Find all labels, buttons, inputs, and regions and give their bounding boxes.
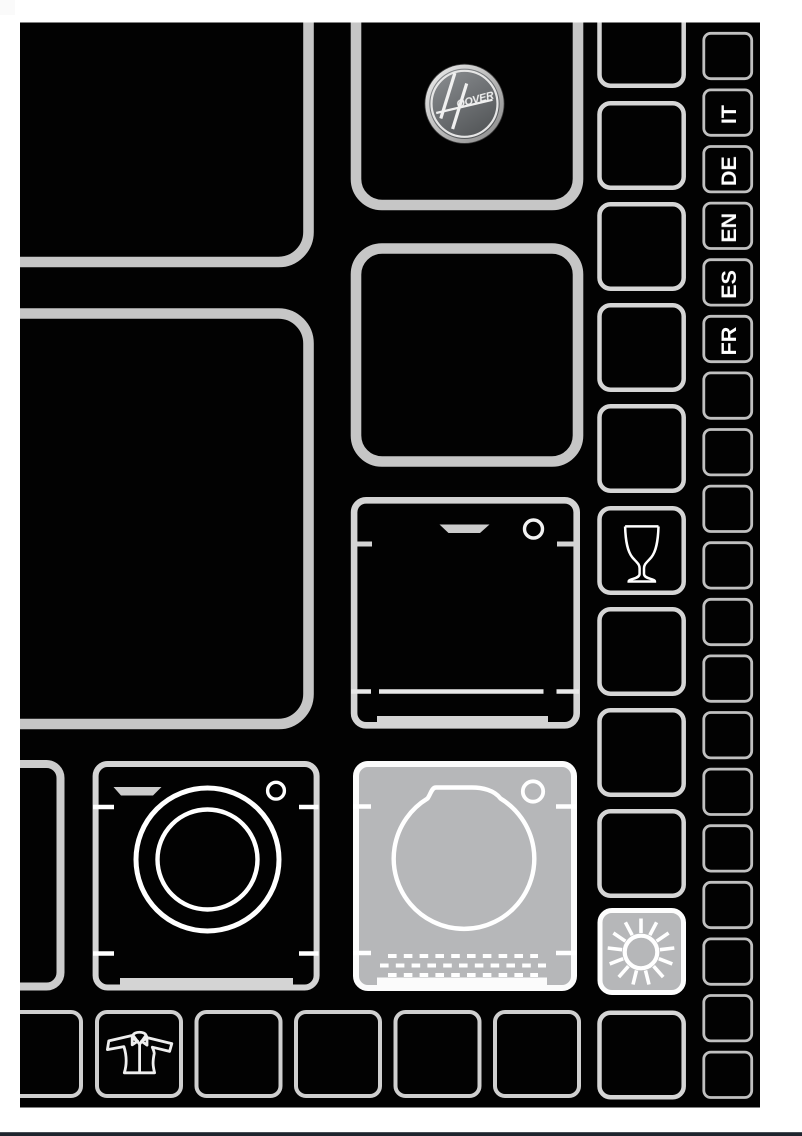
svg-text:FR: FR (717, 326, 741, 355)
svg-text:DE: DE (717, 156, 741, 186)
svg-text:IT: IT (717, 105, 741, 124)
svg-text:EN: EN (717, 213, 741, 243)
svg-text:ES: ES (717, 270, 741, 299)
